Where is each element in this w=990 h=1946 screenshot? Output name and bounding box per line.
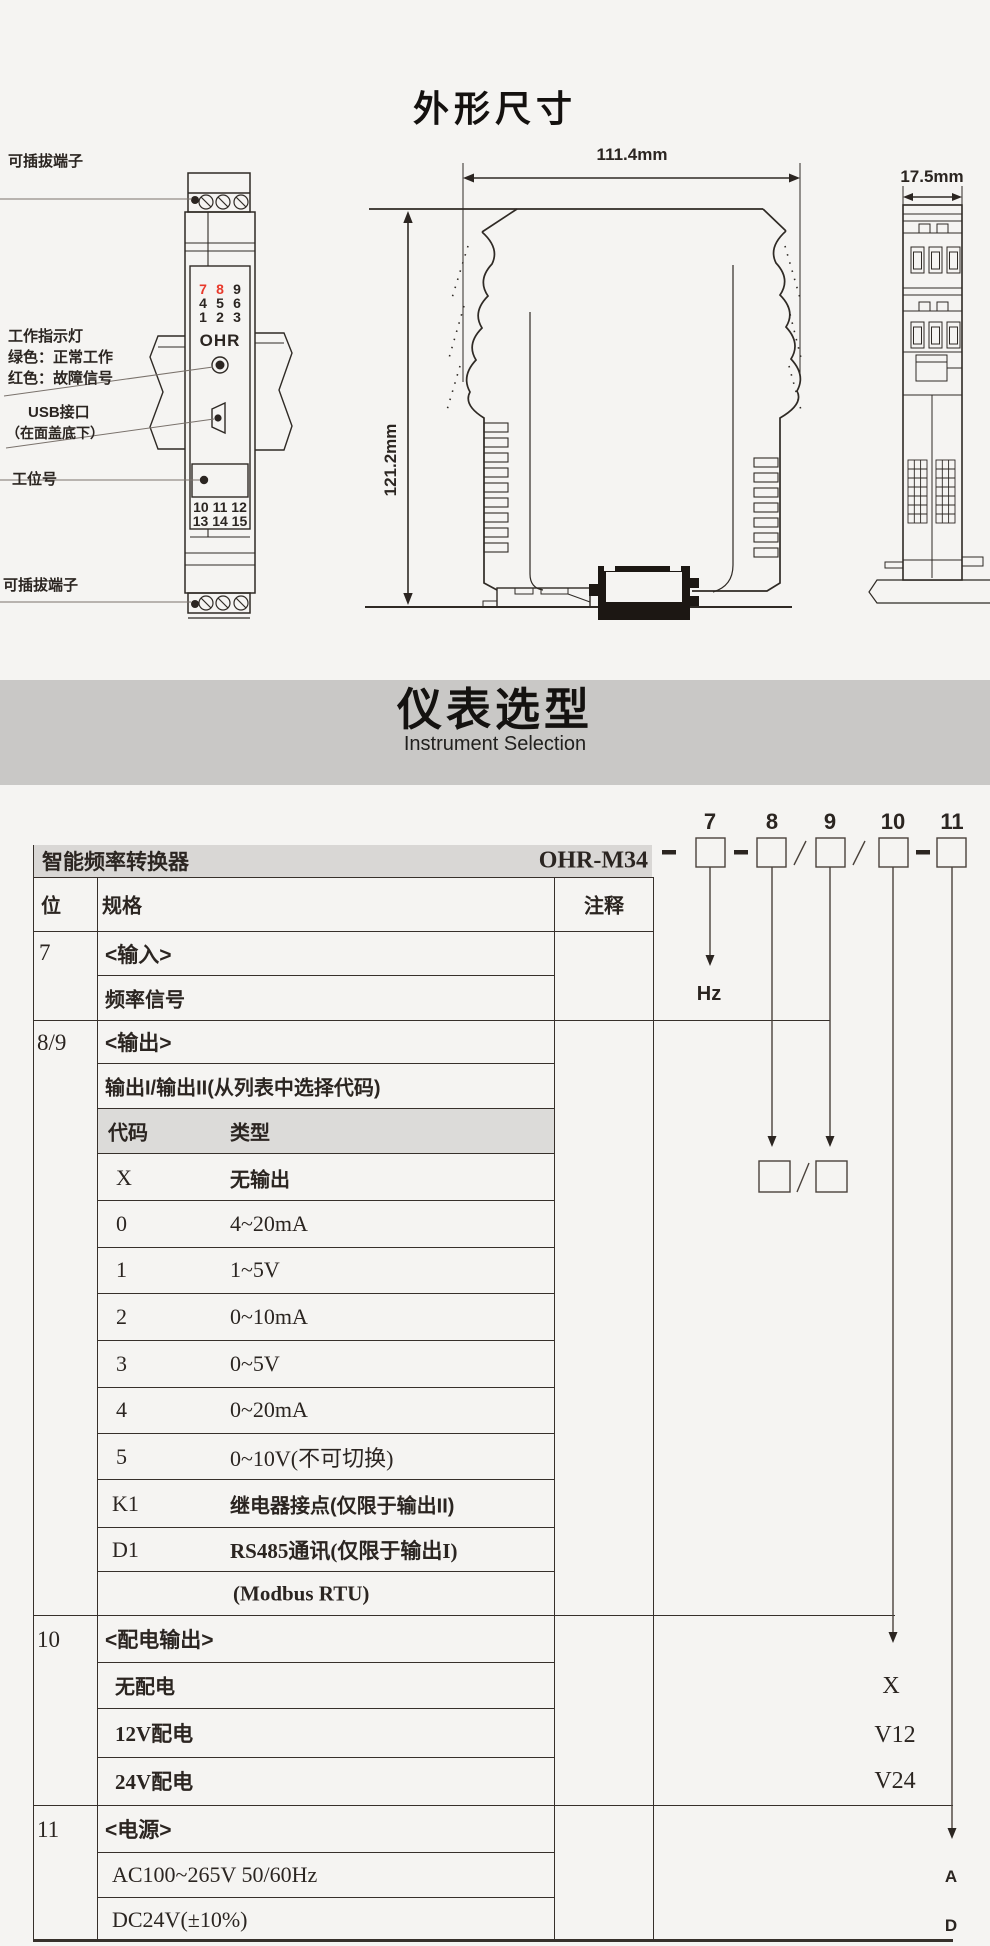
output2-code-box (816, 1161, 847, 1192)
power-code-a: A (945, 1867, 957, 1886)
banner-title: 仪表选型 (0, 687, 990, 732)
top-view-drawing (869, 186, 990, 603)
code-box-10 (879, 838, 908, 867)
top-terminal-pointer-dot (191, 196, 199, 204)
digit-label-9: 9 (824, 809, 836, 834)
din-foot (497, 588, 590, 607)
height-dimension: 121.2mm (381, 424, 400, 497)
station-label: 工位号 (12, 470, 57, 488)
indicator-label-1: 工作指示灯 (8, 327, 83, 345)
bottom-terminal-pointer-dot (191, 600, 199, 608)
din-rail-section (589, 566, 699, 620)
digit-label-10: 10 (881, 809, 905, 834)
supply-code-v24: V24 (874, 1768, 915, 1794)
dimension-drawings: 可插拔端子 工作指示灯 绿色：正常工作 红色：故障信号 USB接口 （在面盖底下… (0, 0, 990, 660)
usb-label-2: （在面盖底下） (6, 425, 104, 441)
terminal-number: 1 (199, 309, 207, 325)
dash-separator (916, 850, 930, 855)
brand-logo: OHR (200, 331, 241, 350)
terminal-number: 3 (233, 309, 241, 325)
power-code-d: D (945, 1916, 957, 1935)
digit-label-11: 11 (940, 809, 963, 834)
code-box-11 (937, 838, 966, 867)
code-box-7 (696, 838, 725, 867)
terminal-row: 13 14 15 (193, 513, 248, 529)
input-code-hz: Hz (697, 983, 721, 1005)
supply-code-x: X (882, 1673, 899, 1699)
code-box-8 (757, 838, 786, 867)
terminal-number: 2 (216, 309, 224, 325)
digit-label-7: 7 (704, 809, 716, 834)
dash-separator (662, 850, 676, 855)
indicator-label-2: 绿色：正常工作 (8, 348, 113, 366)
supply-code-v12: V12 (874, 1722, 915, 1748)
dash-separator (734, 850, 748, 855)
width-dimension: 111.4mm (597, 145, 668, 164)
datasheet-page: 外形尺寸 (0, 0, 990, 1946)
model-code-graph: 7 8 9 10 11 Hz A D X V12 V24 (0, 785, 990, 1946)
plug-bottom-label: 可插拔端子 (3, 576, 78, 594)
front-view-drawing (0, 173, 292, 618)
plug-top-label: 可插拔端子 (8, 152, 83, 170)
side-view-drawing (365, 163, 801, 620)
banner-subtitle: Instrument Selection (0, 733, 990, 756)
indicator-label-3: 红色：故障信号 (8, 369, 113, 387)
selection-banner: 仪表选型 Instrument Selection (0, 680, 990, 785)
code-box-9 (816, 838, 845, 867)
slash-separator (853, 841, 865, 865)
slash-separator (794, 841, 806, 865)
slash-separator (797, 1163, 809, 1192)
usb-label-1: USB接口 (28, 403, 90, 421)
output1-code-box (759, 1161, 790, 1192)
depth-dimension: 17.5mm (900, 167, 963, 186)
digit-label-8: 8 (766, 809, 778, 834)
